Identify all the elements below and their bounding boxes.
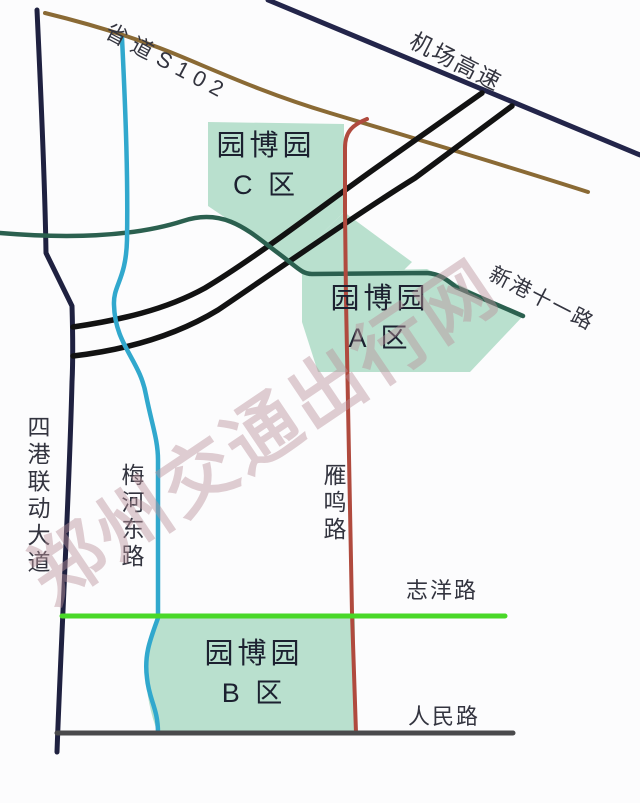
label-zhiyang-road: 志洋路: [406, 573, 478, 605]
zone-a-label-section: A 区: [316, 325, 444, 352]
label-renmin-road: 人民路: [408, 699, 480, 731]
zone-b-label-section: B 区: [190, 680, 318, 707]
zone-c-label-section: C 区: [202, 172, 330, 199]
road-sigang-liandong-line: [37, 10, 73, 752]
map-graphics: [0, 0, 640, 803]
label-meihe-east-road: 梅河东路: [114, 463, 148, 571]
zone-b-label: 园博园 B 区: [190, 640, 318, 707]
zone-a-label-name: 园博园: [316, 285, 444, 314]
zone-b-label-name: 园博园: [190, 640, 318, 669]
label-sigang-liandong-avenue: 四港联动大道: [20, 415, 54, 577]
road-meihe-east-line: [114, 38, 158, 733]
zone-c-label-name: 园博园: [202, 132, 330, 161]
map-canvas: 省道S102 机场高速 新港十一路 四港联动大道 梅河东路 雁鸣路 志洋路 人民…: [0, 0, 640, 803]
zone-c-label: 园博园 C 区: [202, 132, 330, 199]
label-yanming-road: 雁鸣路: [316, 463, 350, 544]
zone-a-label: 园博园 A 区: [316, 285, 444, 352]
